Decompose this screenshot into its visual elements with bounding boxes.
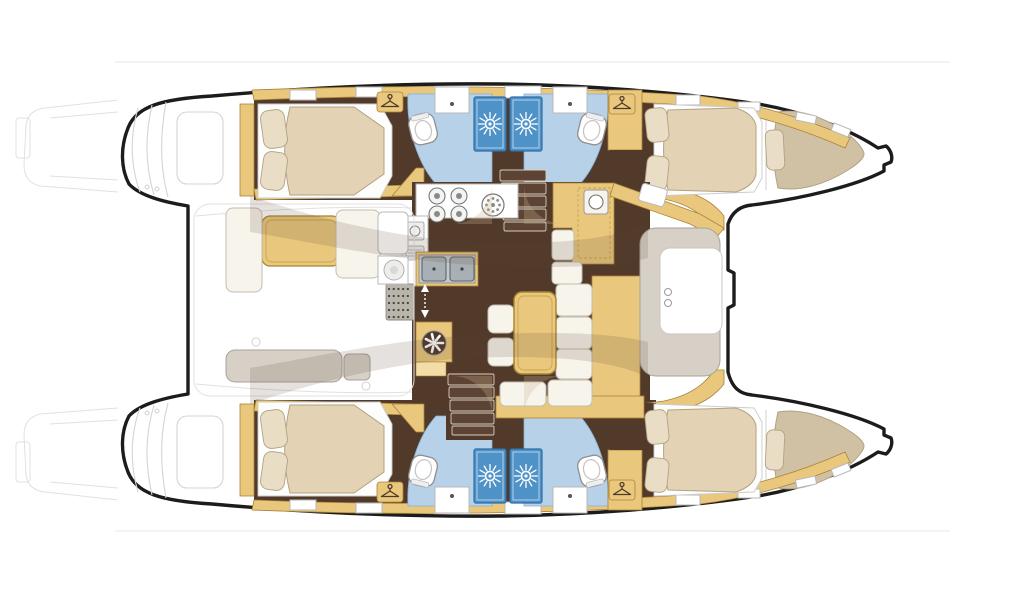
sofa-cushion <box>500 382 546 406</box>
stool <box>488 305 514 333</box>
sofa-cushion <box>556 284 592 316</box>
hanger-icon <box>609 94 635 114</box>
sofa-cushion <box>548 380 592 406</box>
catamaran-floor-plan: Port hull: aft double cabin, two shower … <box>0 0 1024 600</box>
foredeck-lounge: Forward cockpit lounge with cup holders <box>640 228 722 376</box>
hanger-icon <box>377 92 403 112</box>
hanger-icon <box>377 482 403 502</box>
cockpit-sink <box>378 256 408 284</box>
entry-mat <box>386 284 414 320</box>
hanger-icon <box>609 480 635 500</box>
floor-plan-canvas: Port hull: aft double cabin, two shower … <box>0 0 1024 600</box>
instrument-dial <box>584 190 608 214</box>
